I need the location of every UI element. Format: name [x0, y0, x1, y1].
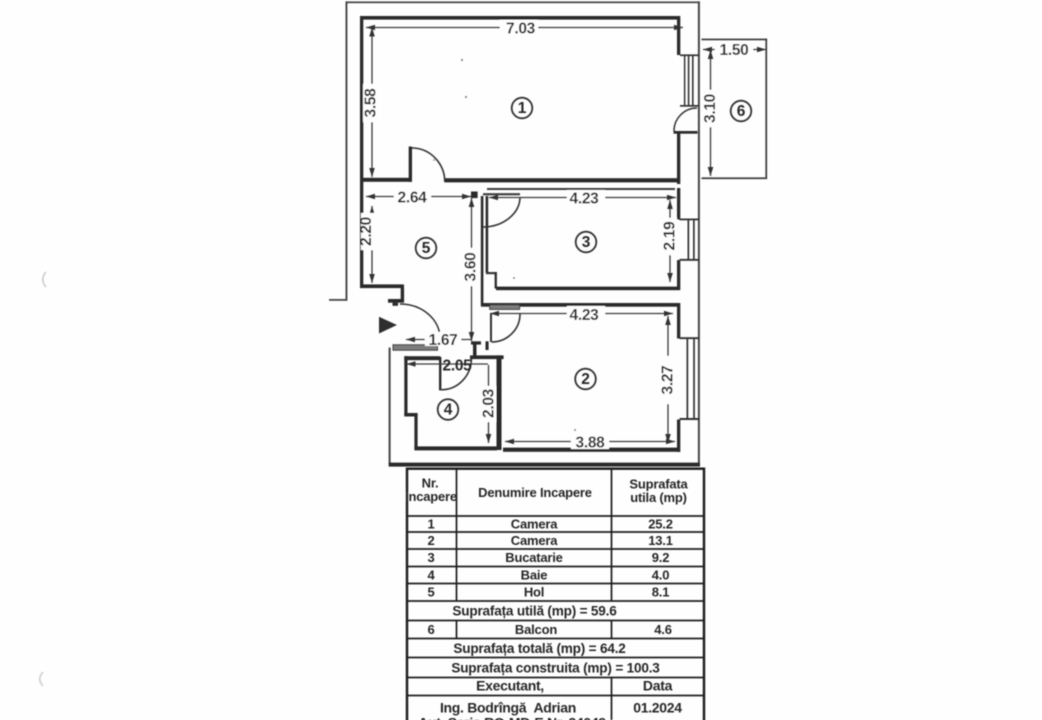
svg-text:1: 1: [427, 517, 434, 532]
svg-text:1: 1: [518, 100, 527, 117]
svg-text:13.1: 13.1: [648, 533, 673, 548]
svg-text:4.23: 4.23: [570, 191, 600, 208]
svg-text:Baie: Baie: [521, 568, 548, 583]
svg-text:5: 5: [422, 240, 431, 257]
svg-text:1.50: 1.50: [720, 42, 749, 59]
svg-text:2.19: 2.19: [662, 221, 679, 251]
svg-text:Balcon: Balcon: [515, 622, 557, 637]
svg-text:1.67: 1.67: [429, 332, 458, 349]
svg-text:8.1: 8.1: [652, 585, 669, 600]
svg-text:2.20: 2.20: [358, 217, 375, 246]
svg-text:3: 3: [582, 234, 591, 251]
svg-text:Suprafața utilă (mp) = 59.6: Suprafața utilă (mp) = 59.6: [452, 604, 617, 619]
svg-text:Incapere: Incapere: [405, 489, 457, 504]
svg-text:3.60: 3.60: [463, 253, 480, 282]
svg-text:2: 2: [581, 371, 590, 388]
svg-text:3: 3: [427, 550, 434, 565]
svg-text:Executant,: Executant,: [476, 678, 544, 694]
svg-text:2.05: 2.05: [443, 358, 473, 375]
svg-text:2.03: 2.03: [481, 388, 498, 418]
svg-text:2: 2: [427, 533, 434, 548]
svg-text:4.23: 4.23: [570, 307, 600, 324]
svg-text:3.27: 3.27: [660, 366, 677, 395]
svg-text:3.88: 3.88: [576, 435, 606, 452]
svg-text:Aut. Seria RO-MD-E Nr. 24049: Aut. Seria RO-MD-E Nr. 24049: [418, 715, 606, 720]
svg-text:Suprafața construita (mp) = 10: Suprafața construita (mp) = 100.3: [451, 661, 660, 676]
svg-text:4: 4: [427, 568, 435, 583]
svg-text:Data: Data: [643, 678, 673, 694]
svg-text:Camera: Camera: [511, 533, 558, 548]
svg-text:7.03: 7.03: [506, 21, 536, 38]
svg-text:25.2: 25.2: [648, 517, 673, 532]
svg-text:Bucatarie: Bucatarie: [505, 550, 562, 565]
svg-text:4.6: 4.6: [654, 622, 671, 637]
svg-text:Ing. Bodrîngă Adrian: Ing. Bodrîngă Adrian: [440, 700, 576, 716]
svg-text:9.2: 9.2: [652, 550, 669, 565]
svg-text:Hol: Hol: [524, 585, 544, 600]
svg-text:4: 4: [444, 402, 453, 419]
svg-text:6: 6: [737, 103, 746, 120]
svg-text:Camera: Camera: [511, 517, 558, 532]
svg-text:utila (mp): utila (mp): [630, 490, 687, 505]
svg-text:4.0: 4.0: [652, 568, 669, 583]
svg-text:2.64: 2.64: [398, 190, 428, 207]
svg-text:Suprafața totală (mp) = 64.2: Suprafața totală (mp) = 64.2: [453, 641, 626, 656]
svg-text:6: 6: [427, 622, 434, 637]
svg-text:Denumire Incapere: Denumire Incapere: [478, 485, 592, 500]
svg-text:01.2024: 01.2024: [633, 700, 682, 716]
svg-text:5: 5: [427, 585, 434, 600]
svg-text:3.58: 3.58: [363, 88, 380, 118]
svg-text:3.10: 3.10: [702, 94, 719, 123]
